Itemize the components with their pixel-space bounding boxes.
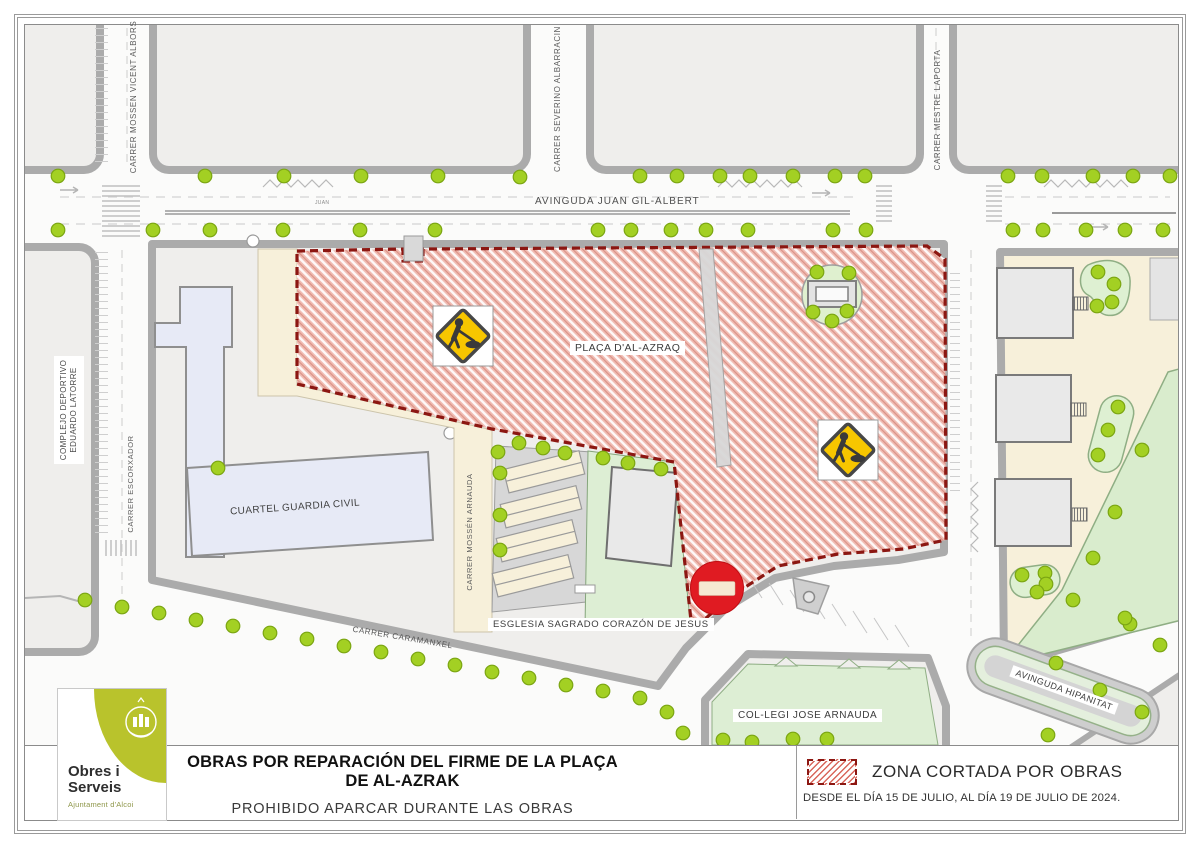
street-label-mossen-arnauda: CARRER MOSSÉN ARNAUDA <box>460 432 478 632</box>
street-label-severino-albarracin: CARRER SEVERINO ALBARRACIN <box>548 0 566 199</box>
legend-dates: DESDE EL DÍA 15 DE JULIO, AL DÍA 19 DE J… <box>803 792 1178 804</box>
complejo-line2: EDUARDO LATORRE <box>69 367 79 452</box>
street-label-mossen-vicent-albors: CARRER MOSSEN VICENT ALBORS <box>124 0 142 197</box>
obres-i-serveis-logo: Obres i Serveis Ajuntament d'Alcoi <box>57 688 167 821</box>
closed-zone-swatch-icon <box>807 759 857 785</box>
street-label-mestre-laporta: CARRER MESTRE LAPORTA <box>928 10 946 210</box>
plan-sheet: AVINGUDA JUAN GIL-ALBERT JUAN CARRER MOS… <box>0 0 1200 848</box>
legend-label: ZONA CORTADA POR OBRAS <box>872 762 1123 782</box>
street-label-juan-small: JUAN <box>315 200 329 206</box>
esglesia-label: ESGLESIA SAGRADO CORAZÓN DE JESUS <box>488 618 714 631</box>
legend: ZONA CORTADA POR OBRAS DESDE EL DÍA 15 D… <box>796 746 1178 819</box>
complejo-line1: COMPLEJO DEPORTIVO <box>59 360 69 460</box>
title-line1: OBRAS POR REPARACIÓN DEL FIRME DE LA PLA… <box>175 753 630 791</box>
logo-name-line1: Obres i <box>68 764 121 780</box>
logo-subtitle: Ajuntament d'Alcoi <box>68 800 133 809</box>
sheet-title: OBRAS POR REPARACIÓN DEL FIRME DE LA PLA… <box>175 753 630 817</box>
alcoi-crest-icon <box>117 692 163 750</box>
complejo-deportivo-label: COMPLEJO DEPORTIVO EDUARDO LATORRE <box>54 356 84 464</box>
street-label-escorxador: CARRER ESCORXADOR <box>121 384 139 584</box>
inner-frame <box>24 24 1179 821</box>
placa-al-azraq-label: PLAÇA D'AL-AZRAQ <box>570 341 685 355</box>
title-line2: PROHIBIDO APARCAR DURANTE LAS OBRAS <box>175 801 630 817</box>
logo-name: Obres i Serveis <box>68 764 121 796</box>
collegi-label: COL-LEGI JOSE ARNAUDA <box>733 709 882 722</box>
logo-name-line2: Serveis <box>68 780 121 796</box>
